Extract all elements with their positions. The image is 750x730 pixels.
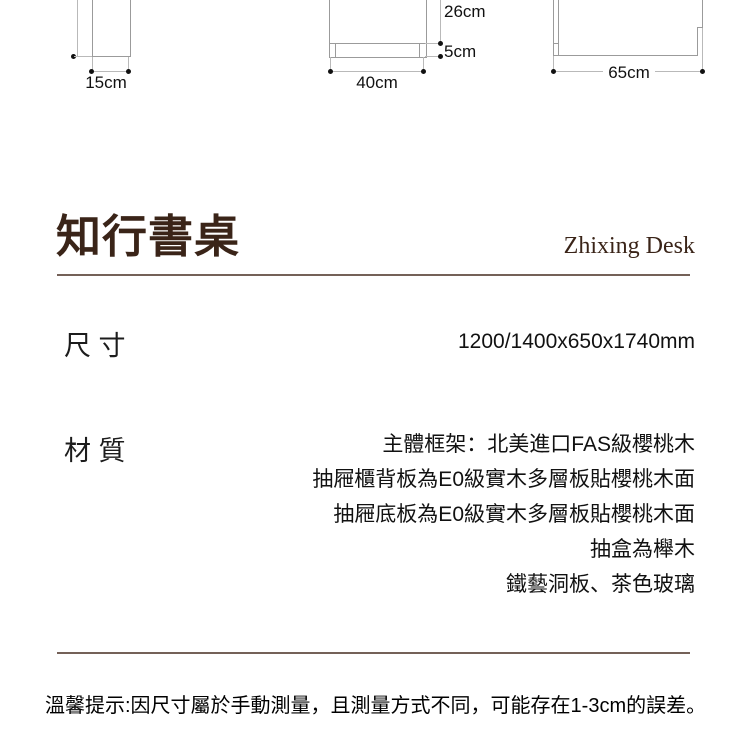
material-line-pegboard-glass: 鐵藝洞板、茶色玻璃: [312, 572, 695, 607]
middle-plinth-top-line: [329, 43, 425, 44]
footer-divider: [57, 652, 690, 654]
middle-5cm-dot: [438, 54, 443, 59]
middle-26cm-dot: [438, 41, 443, 46]
middle-foot-right-line: [419, 43, 420, 57]
left-width-label: 15cm: [83, 73, 129, 93]
middle-dim-dot-a: [328, 69, 333, 74]
material-lines: 主體框架：北美進口FAS級櫻桃木 抽屜櫃背板為E0級實木多層板貼櫻桃木面 抽屜底…: [312, 432, 695, 607]
right-leg-inner-line: [558, 0, 559, 55]
product-title-zh: 知行書桌: [56, 200, 240, 265]
material-line-drawer-bottom: 抽屜底板為E0級實木多層板貼櫻桃木面: [312, 502, 695, 537]
left-extension-vline: [77, 0, 78, 57]
left-ext-down-a: [92, 57, 93, 70]
middle-dim-line: [330, 71, 424, 72]
product-title-en: Zhixing Desk: [564, 233, 695, 260]
middle-upper-height-label: 26cm: [444, 2, 486, 22]
right-bottom-edge: [553, 55, 698, 56]
right-ext-right: [702, 28, 703, 71]
material-label: 材 質: [64, 429, 126, 468]
title-divider: [57, 274, 690, 276]
left-side-hline: [74, 56, 92, 57]
material-line-backboard: 抽屜櫃背板為E0級實木多層板貼櫻桃木面: [312, 467, 695, 502]
right-dim-dot-a: [551, 69, 556, 74]
right-edge-bottom: [697, 27, 698, 55]
right-dim-seg-b: [655, 71, 702, 72]
size-value: 1200/1400x650x1740mm: [458, 330, 695, 354]
right-depth-label: 65cm: [603, 63, 655, 83]
warm-tip-text: 溫馨提示:因尺寸屬於手動測量，且測量方式不同，可能存在1-3cm的誤差。: [45, 689, 706, 718]
material-line-frame: 主體框架：北美進口FAS級櫻桃木: [312, 432, 695, 467]
middle-dim-dot-b: [421, 69, 426, 74]
right-dim-dot-b: [700, 69, 705, 74]
middle-foot-left-line: [335, 43, 336, 57]
middle-plinth-height-label: 5cm: [444, 42, 476, 62]
material-line-drawer-box: 抽盒為櫸木: [312, 537, 695, 572]
left-panel-rect: [92, 0, 131, 57]
right-dim-seg-a: [553, 71, 603, 72]
right-edge-top: [702, 0, 703, 27]
middle-26cm-vline: [440, 0, 441, 43]
middle-width-label: 40cm: [354, 73, 400, 93]
right-leg-connector: [553, 43, 559, 44]
right-leg-outer-line: [553, 0, 554, 55]
product-detail-page: 15cm 26cm 5cm 40cm 65cm 知行: [0, 0, 750, 730]
size-label: 尺 寸: [64, 324, 126, 363]
middle-cabinet-rect: [329, 0, 427, 58]
left-dim-line: [92, 71, 129, 72]
